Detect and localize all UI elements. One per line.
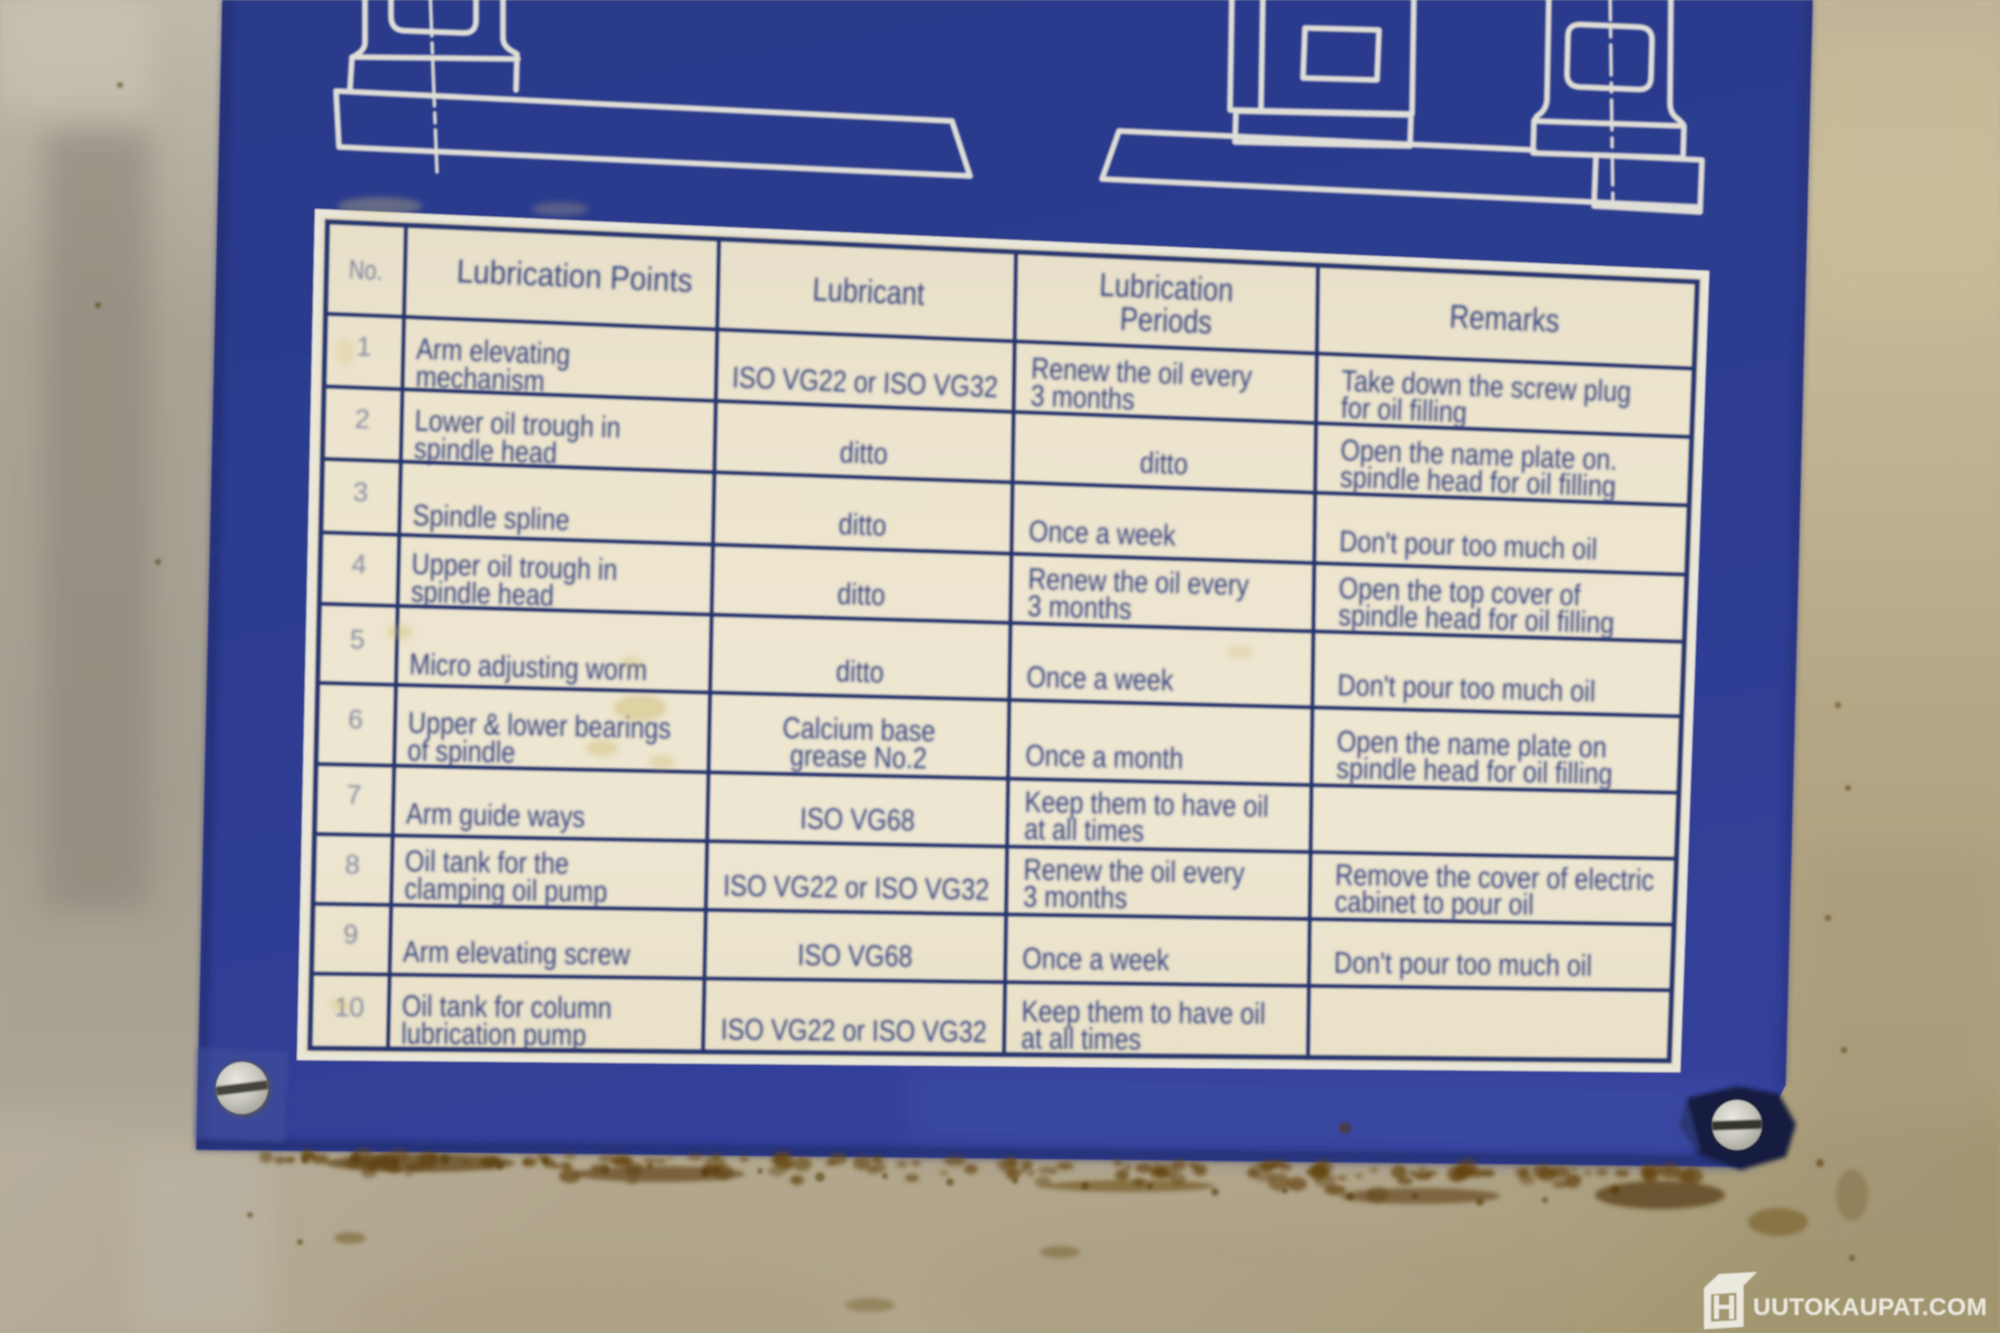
- svg-text:4: 4: [351, 549, 367, 579]
- svg-text:at all times: at all times: [1021, 1022, 1141, 1056]
- svg-text:5: 5: [350, 624, 366, 654]
- svg-text:No.: No.: [348, 255, 383, 286]
- svg-text:Lubricant: Lubricant: [812, 270, 925, 312]
- svg-text:for oil filling: for oil filling: [1340, 392, 1467, 430]
- svg-text:3 months: 3 months: [1023, 881, 1128, 916]
- svg-text:ISO VG22 or ISO VG32: ISO VG22 or ISO VG32: [721, 1013, 987, 1049]
- svg-text:ditto: ditto: [837, 578, 886, 612]
- svg-text:7: 7: [346, 780, 362, 810]
- svg-text:3 months: 3 months: [1030, 380, 1135, 417]
- svg-text:Once a month: Once a month: [1025, 739, 1184, 775]
- svg-text:Don't pour too much oil: Don't pour too much oil: [1334, 947, 1592, 983]
- svg-text:UUTOKAUPAT.COM: UUTOKAUPAT.COM: [1753, 1294, 1987, 1321]
- svg-text:at all times: at all times: [1024, 813, 1145, 848]
- svg-text:ditto: ditto: [1139, 447, 1188, 482]
- svg-text:ISO VG68: ISO VG68: [800, 802, 916, 837]
- svg-text:Periods: Periods: [1119, 300, 1212, 341]
- svg-text:Once a week: Once a week: [1022, 942, 1170, 977]
- svg-text:Remarks: Remarks: [1449, 298, 1560, 340]
- svg-text:ISO VG68: ISO VG68: [797, 939, 912, 973]
- svg-text:Arm elevating screw: Arm elevating screw: [403, 936, 631, 972]
- svg-text:Micro adjusting worm: Micro adjusting worm: [409, 648, 648, 687]
- svg-text:8: 8: [345, 849, 361, 879]
- svg-text:Arm guide ways: Arm guide ways: [406, 798, 586, 834]
- svg-text:3: 3: [353, 477, 369, 507]
- svg-text:ditto: ditto: [838, 508, 887, 542]
- svg-text:ditto: ditto: [836, 655, 885, 689]
- svg-text:spindle head: spindle head: [414, 432, 558, 470]
- svg-text:spindle head: spindle head: [411, 576, 555, 613]
- svg-text:grease No.2: grease No.2: [790, 740, 928, 776]
- svg-text:6: 6: [348, 704, 364, 734]
- svg-text:spindle head for oil filling: spindle head for oil filling: [1336, 752, 1613, 791]
- svg-text:Don't pour too much oil: Don't pour too much oil: [1337, 669, 1596, 708]
- svg-text:Spindle spline: Spindle spline: [412, 499, 570, 537]
- svg-text:Once a week: Once a week: [1028, 515, 1177, 553]
- svg-text:2: 2: [354, 404, 370, 435]
- svg-text:mechanism: mechanism: [415, 361, 545, 399]
- svg-text:3 months: 3 months: [1027, 590, 1132, 626]
- svg-text:Once a week: Once a week: [1026, 661, 1175, 698]
- svg-text:ditto: ditto: [839, 436, 888, 471]
- svg-text:H: H: [1712, 1289, 1737, 1327]
- svg-text:1: 1: [356, 331, 372, 362]
- svg-text:of spindle: of spindle: [407, 734, 516, 769]
- svg-text:ISO VG22 or ISO VG32: ISO VG22 or ISO VG32: [723, 870, 989, 907]
- svg-text:lubrication pump: lubrication pump: [401, 1018, 586, 1053]
- svg-text:cabinet to pour oil: cabinet to pour oil: [1334, 886, 1533, 922]
- svg-text:9: 9: [343, 919, 358, 949]
- svg-text:clamping oil pump: clamping oil pump: [404, 873, 607, 909]
